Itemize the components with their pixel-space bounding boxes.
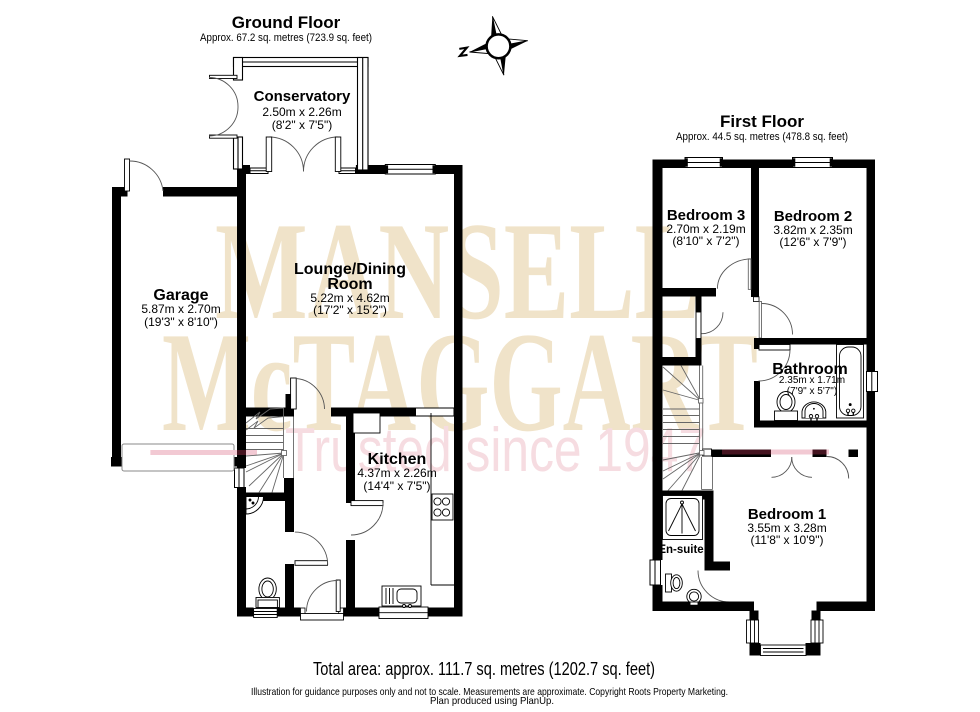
svg-text:2.35m x 1.71m: 2.35m x 1.71m bbox=[779, 375, 845, 386]
svg-text:Total area: approx. 111.7 sq.: Total area: approx. 111.7 sq. metres (12… bbox=[313, 659, 655, 679]
svg-text:5.87m x 2.70m: 5.87m x 2.70m bbox=[141, 302, 220, 316]
svg-text:Approx. 67.2 sq. metres (723.9: Approx. 67.2 sq. metres (723.9 sq. feet) bbox=[200, 32, 372, 44]
svg-text:En-suite: En-suite bbox=[658, 544, 703, 556]
svg-text:(11'8" x 10'9"): (11'8" x 10'9") bbox=[751, 533, 824, 547]
svg-text:Ground Floor: Ground Floor bbox=[232, 13, 341, 32]
svg-text:First Floor: First Floor bbox=[720, 112, 804, 131]
svg-text:Plan produced using PlanUp.: Plan produced using PlanUp. bbox=[430, 695, 554, 707]
svg-text:(8'2" x 7'5"): (8'2" x 7'5") bbox=[272, 118, 332, 132]
svg-text:4.37m x 2.26m: 4.37m x 2.26m bbox=[357, 466, 436, 480]
svg-text:(14'4" x 7'5"): (14'4" x 7'5") bbox=[363, 479, 430, 493]
svg-text:2.50m x 2.26m: 2.50m x 2.26m bbox=[262, 105, 341, 119]
svg-text:Conservatory: Conservatory bbox=[254, 88, 351, 105]
svg-text:(19'3" x 8'10"): (19'3" x 8'10") bbox=[144, 315, 218, 329]
svg-text:(12'6" x 7'9"): (12'6" x 7'9") bbox=[779, 235, 846, 249]
svg-text:(7'9" x 5'7"): (7'9" x 5'7") bbox=[787, 386, 837, 397]
svg-text:(17'2" x 15'2"): (17'2" x 15'2") bbox=[313, 303, 387, 317]
svg-text:(8'10" x 7'2"): (8'10" x 7'2") bbox=[672, 234, 739, 248]
svg-text:Approx. 44.5 sq. metres (478.8: Approx. 44.5 sq. metres (478.8 sq. feet) bbox=[676, 131, 848, 143]
